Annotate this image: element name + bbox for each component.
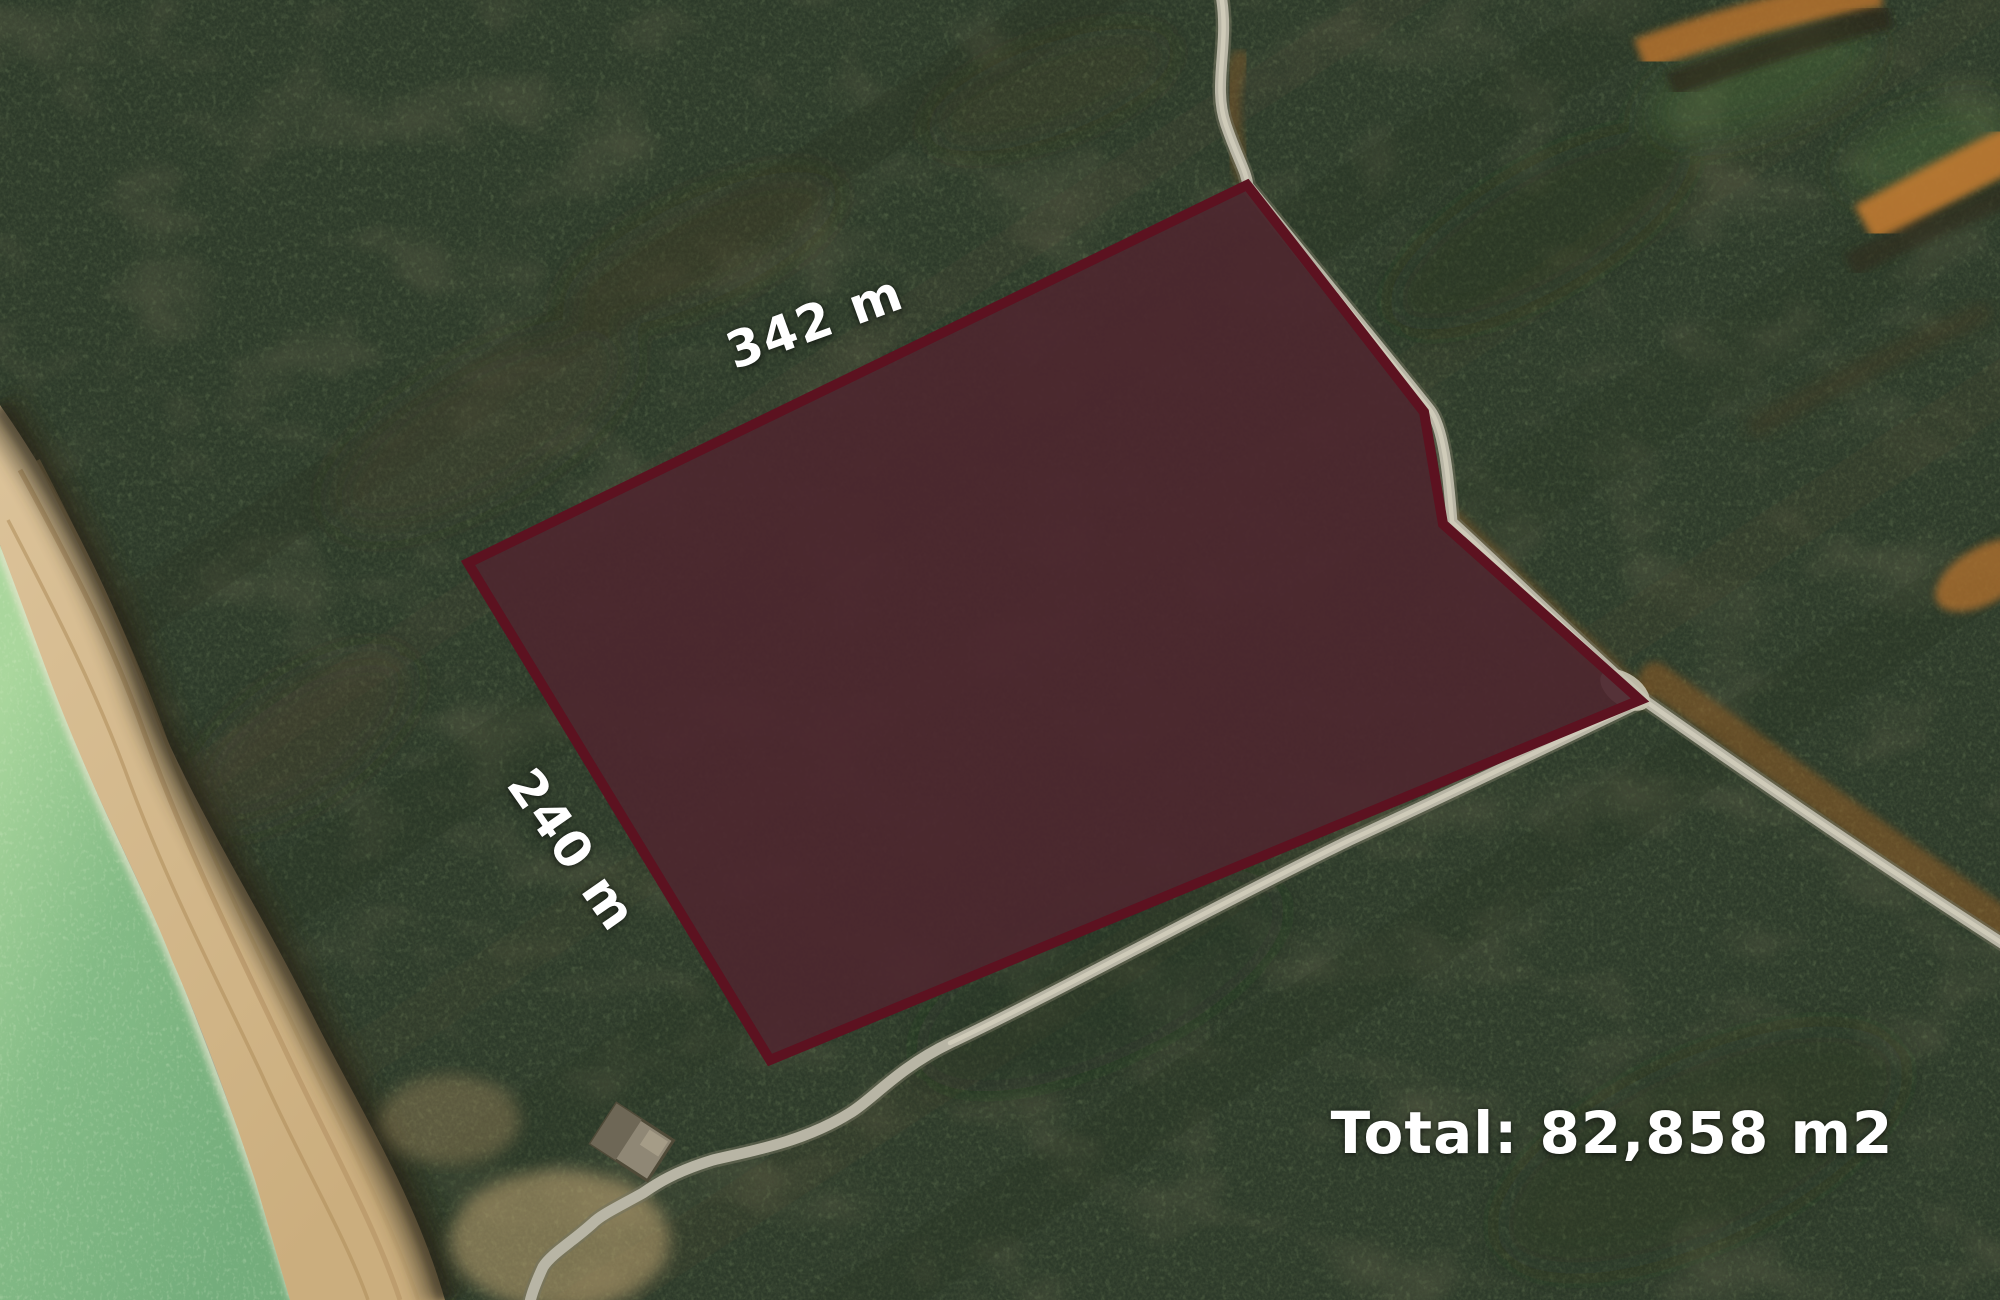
- total-area-label: Total: 82,858 m2: [1331, 1099, 1894, 1167]
- satellite-map[interactable]: 342 m 240 m Total: 82,858 m2: [0, 0, 2000, 1300]
